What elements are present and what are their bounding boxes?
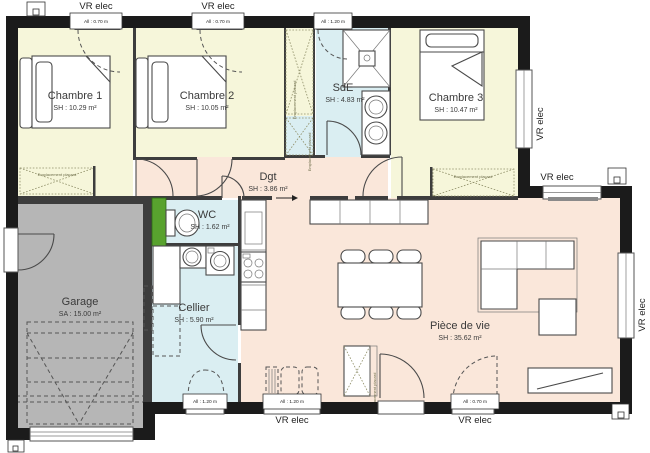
washing-machine [206, 246, 234, 275]
sill-text-ch2: All : 0.70 m [206, 19, 230, 25]
sill-text-kitchen: All : 1.20 m [280, 399, 304, 405]
downspout-step [608, 168, 626, 184]
wall-sde-south-left [285, 155, 325, 158]
area-chambre1: SH : 10.29 m² [53, 105, 97, 112]
vr-elec-label-bottom2: VR elec [458, 415, 492, 426]
window-chambre3-east [516, 70, 532, 148]
area-sde: SH : 4.83 m² [325, 97, 365, 104]
area-chambre2: SH : 10.05 m² [185, 105, 229, 112]
sill-text-cellier: All : 1.20 m [193, 399, 217, 405]
window-pdv-east [618, 253, 634, 338]
label-garage: Garage [62, 296, 99, 308]
window-step-sill [548, 197, 598, 201]
wall-strip-east [313, 28, 315, 157]
sill-text-sde: All : 1.20 m [321, 19, 345, 25]
label-chambre2: Chambre 2 [180, 90, 234, 102]
vr-elec-label-pdv-east: VR elec [637, 298, 648, 332]
vr-elec-label-top2: VR elec [201, 1, 235, 12]
kitchen-counter-north [310, 200, 428, 224]
label-chambre1: Chambre 1 [48, 90, 102, 102]
area-garage: SA : 15.00 m² [59, 311, 102, 318]
door-entrance-gap [378, 401, 424, 414]
wall-wc-north-right [242, 196, 272, 200]
label-sde: SdE [333, 82, 354, 94]
sill-text-ch1: All : 0.70 m [84, 19, 108, 25]
vr-elec-label-step: VR elec [540, 172, 574, 183]
wall-strip-west [284, 28, 286, 157]
wall-ch2-south-right [232, 157, 285, 160]
area-chambre3: SH : 10.47 m² [434, 107, 478, 114]
placard-label-ch3: Emplacement placard [454, 174, 493, 179]
window-step [543, 186, 601, 201]
wall-dgt-south-c [397, 196, 430, 200]
wall-garage-stub [143, 402, 155, 440]
placard-label-sde: Emplacement placard [307, 133, 312, 172]
garage-main-door [30, 427, 133, 441]
label-dgt: Dgt [259, 171, 276, 183]
vr-elec-label-bottom1: VR elec [275, 415, 309, 426]
area-dgt: SH : 3.86 m² [248, 186, 288, 193]
area-wc: SH : 1.62 m² [190, 224, 230, 231]
cooktop [241, 252, 266, 282]
area-piece-de-vie: SH : 35.62 m² [438, 335, 482, 342]
downspout-bottom-right [612, 404, 629, 419]
wall-dgt-south-b [355, 196, 388, 200]
wall-cellier-kitchen-low [238, 363, 241, 402]
wall-ch3-south [430, 196, 518, 200]
double-sink [362, 91, 390, 155]
downspout-garage [8, 440, 24, 452]
wall-dgt-south-a [310, 196, 348, 200]
label-chambre3: Chambre 3 [429, 92, 483, 104]
sill-text-pdv: All : 0.70 m [463, 399, 487, 405]
placard-strip-floor [285, 28, 314, 116]
area-cellier: SH : 5.90 m² [174, 317, 214, 324]
label-wc: WC [198, 209, 216, 221]
floor-plan-svg: Emplacement placard Emplacement placard … [0, 0, 650, 453]
shower [343, 30, 390, 87]
floor-plan: Emplacement placard Emplacement placard … [0, 0, 650, 453]
vr-elec-label-ch3-east: VR elec [535, 107, 546, 141]
dining-table [338, 250, 422, 319]
wall-garage-north [6, 196, 151, 204]
garage-side-door-gap [4, 228, 18, 272]
toilet [166, 210, 199, 236]
vr-elec-label-top1: VR elec [79, 1, 113, 12]
water-heater [152, 198, 166, 246]
label-cellier: Cellier [178, 302, 210, 314]
side-table [539, 299, 576, 335]
tv-unit [528, 368, 612, 393]
label-piece-de-vie: Pièce de vie [430, 320, 490, 332]
placard-label-ch1: Emplacement placard [38, 172, 77, 177]
placard-label-ch2: Emplacement placard [292, 81, 297, 120]
downspout-top-left [27, 2, 45, 16]
